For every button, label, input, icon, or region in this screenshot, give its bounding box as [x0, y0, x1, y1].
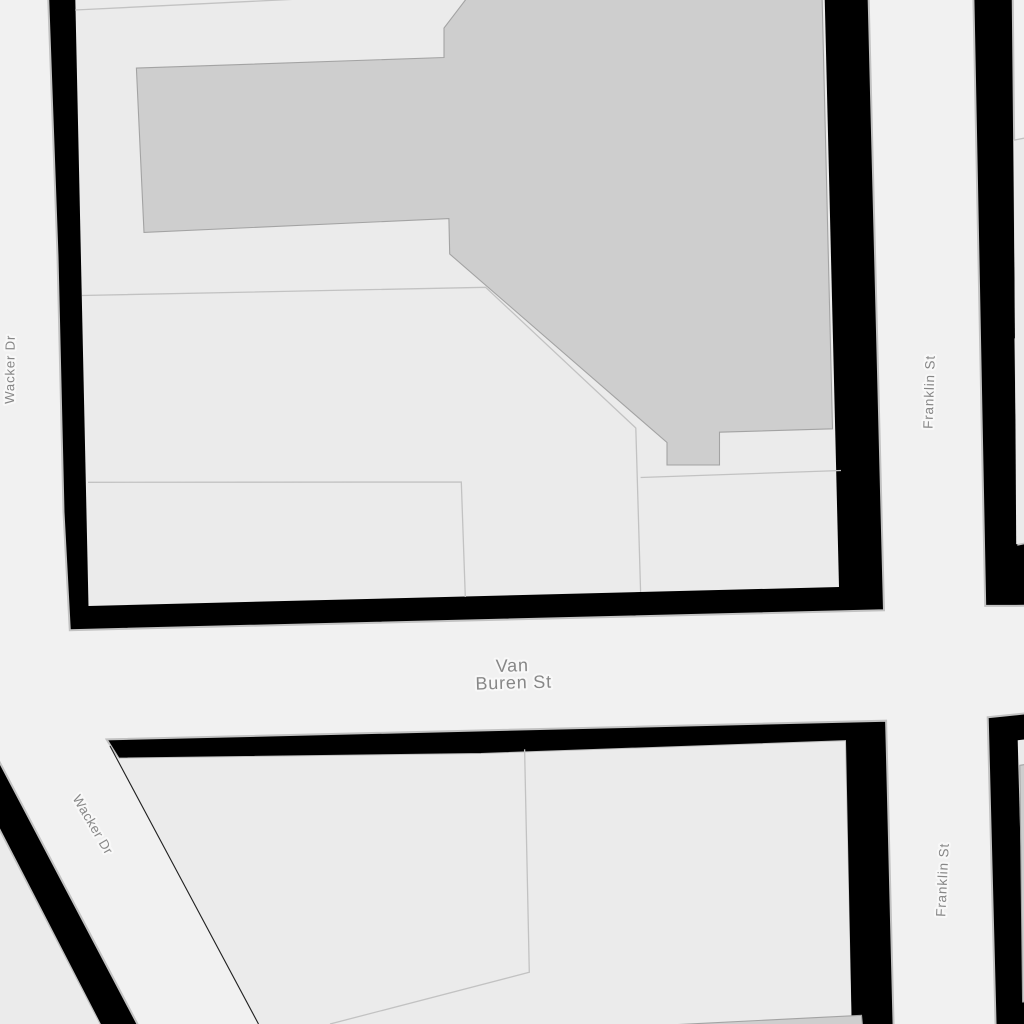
svg-text:Franklin St: Franklin St — [921, 355, 938, 429]
svg-text:Buren St: Buren St — [475, 672, 552, 694]
svg-text:Wacker Dr: Wacker Dr — [2, 335, 18, 404]
